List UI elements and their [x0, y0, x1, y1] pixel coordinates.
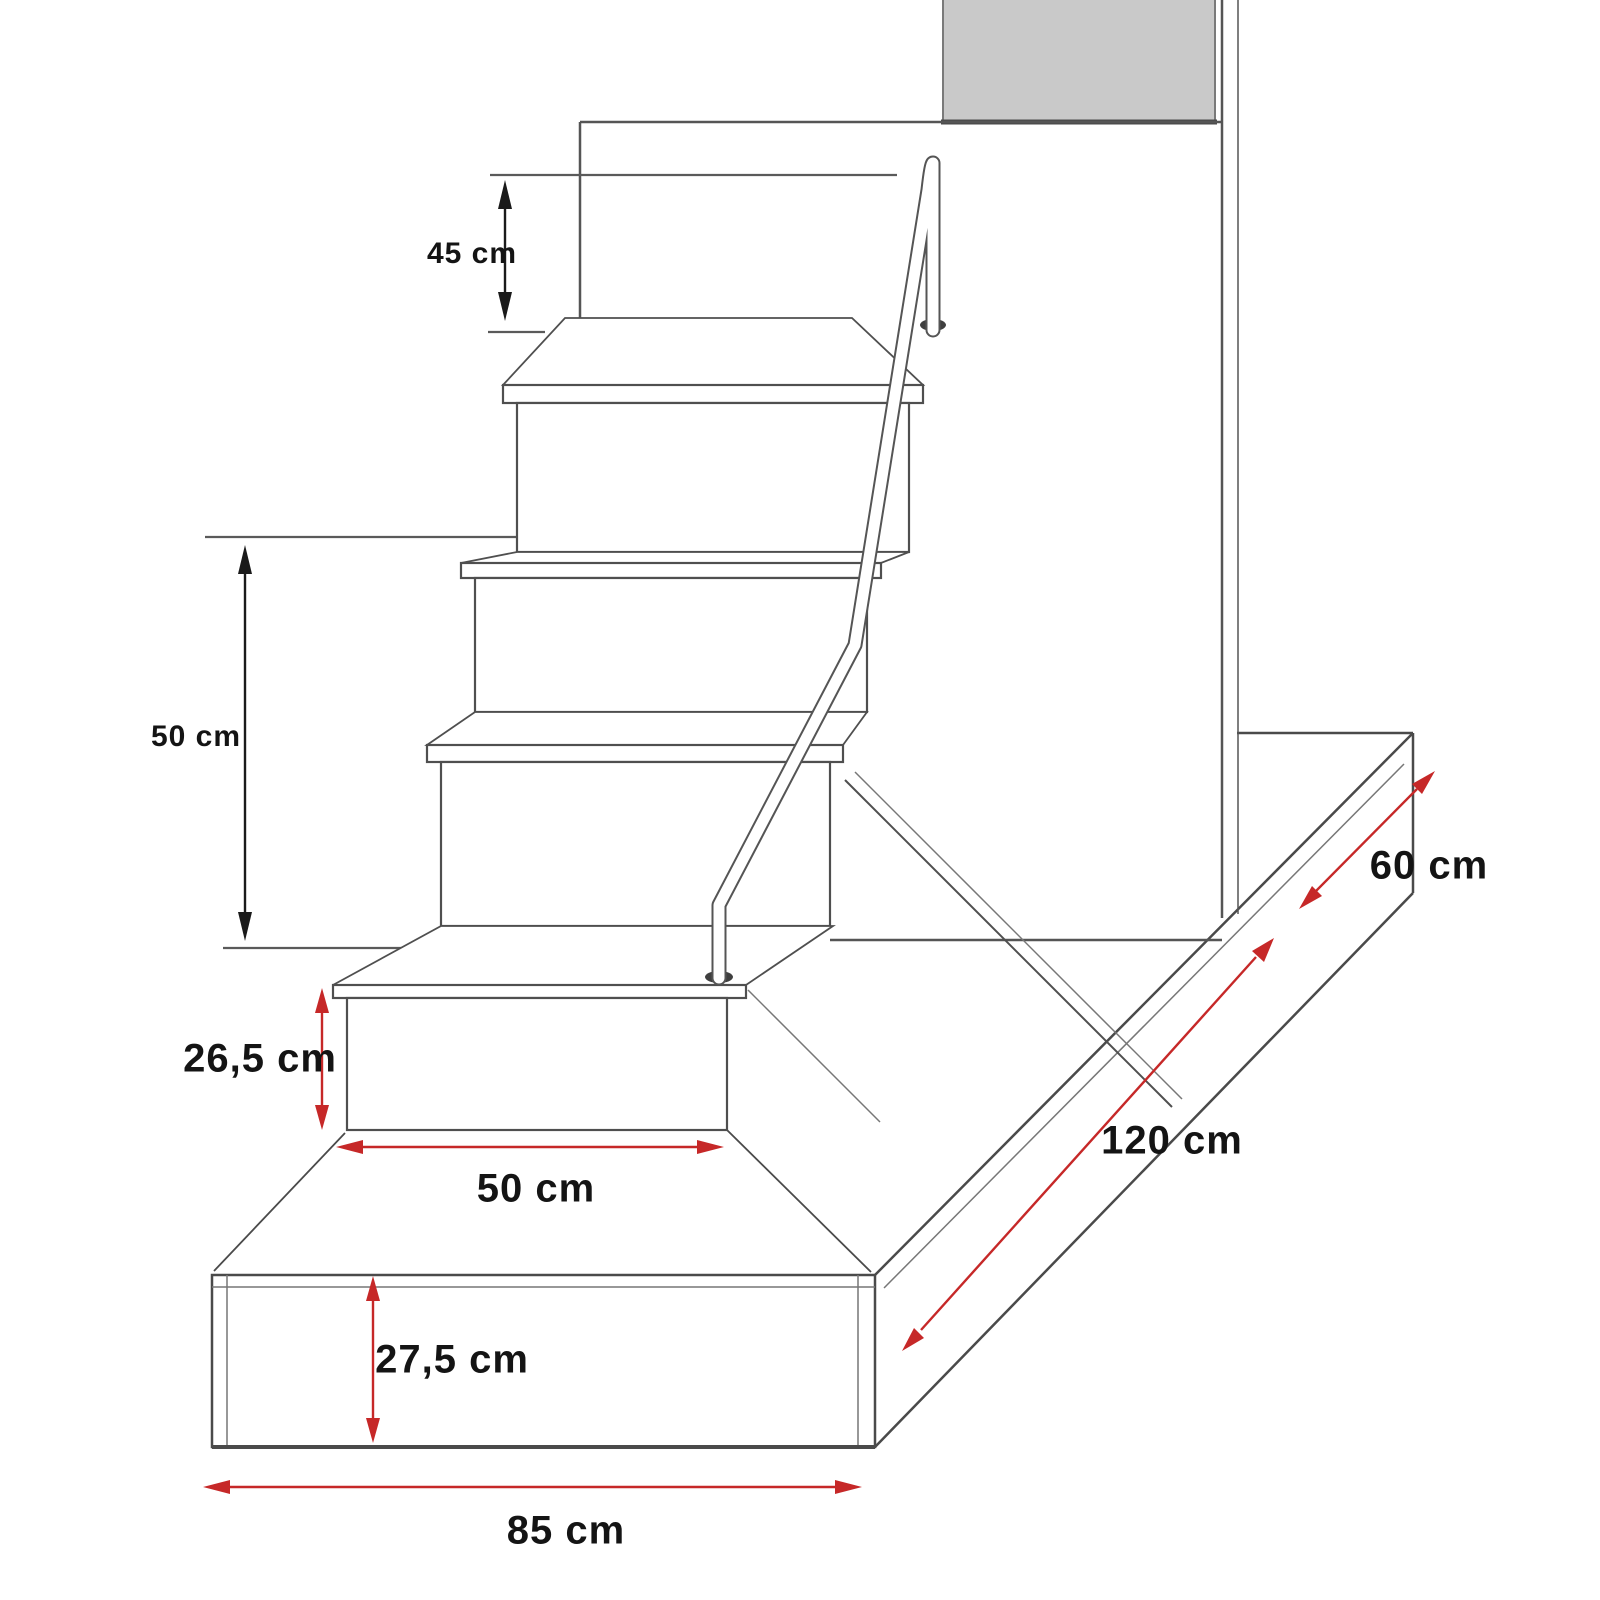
dim-label-120cm: 120 cm [1101, 1119, 1243, 1164]
dim-label-50cm-step: 50 cm [477, 1167, 595, 1212]
diagram-canvas: 45 cm 50 cm 26,5 cm 50 cm 27,5 cm 85 cm … [0, 0, 1600, 1600]
gray-wall-panel [943, 0, 1215, 122]
dim-label-26-5cm: 26,5 cm [183, 1037, 337, 1082]
step-3 [461, 552, 909, 712]
dim-label-27-5cm: 27,5 cm [375, 1338, 529, 1383]
wall-backboard [580, 0, 1222, 318]
dim-label-50cm-left: 50 cm [151, 720, 241, 754]
staircase-line-drawing [0, 0, 1600, 1600]
dim-label-45cm: 45 cm [427, 237, 517, 271]
dim-label-85cm: 85 cm [507, 1509, 625, 1554]
step-4 [503, 318, 923, 552]
dim-arrow-85cm [203, 1480, 862, 1494]
dim-label-60cm: 60 cm [1370, 844, 1488, 889]
